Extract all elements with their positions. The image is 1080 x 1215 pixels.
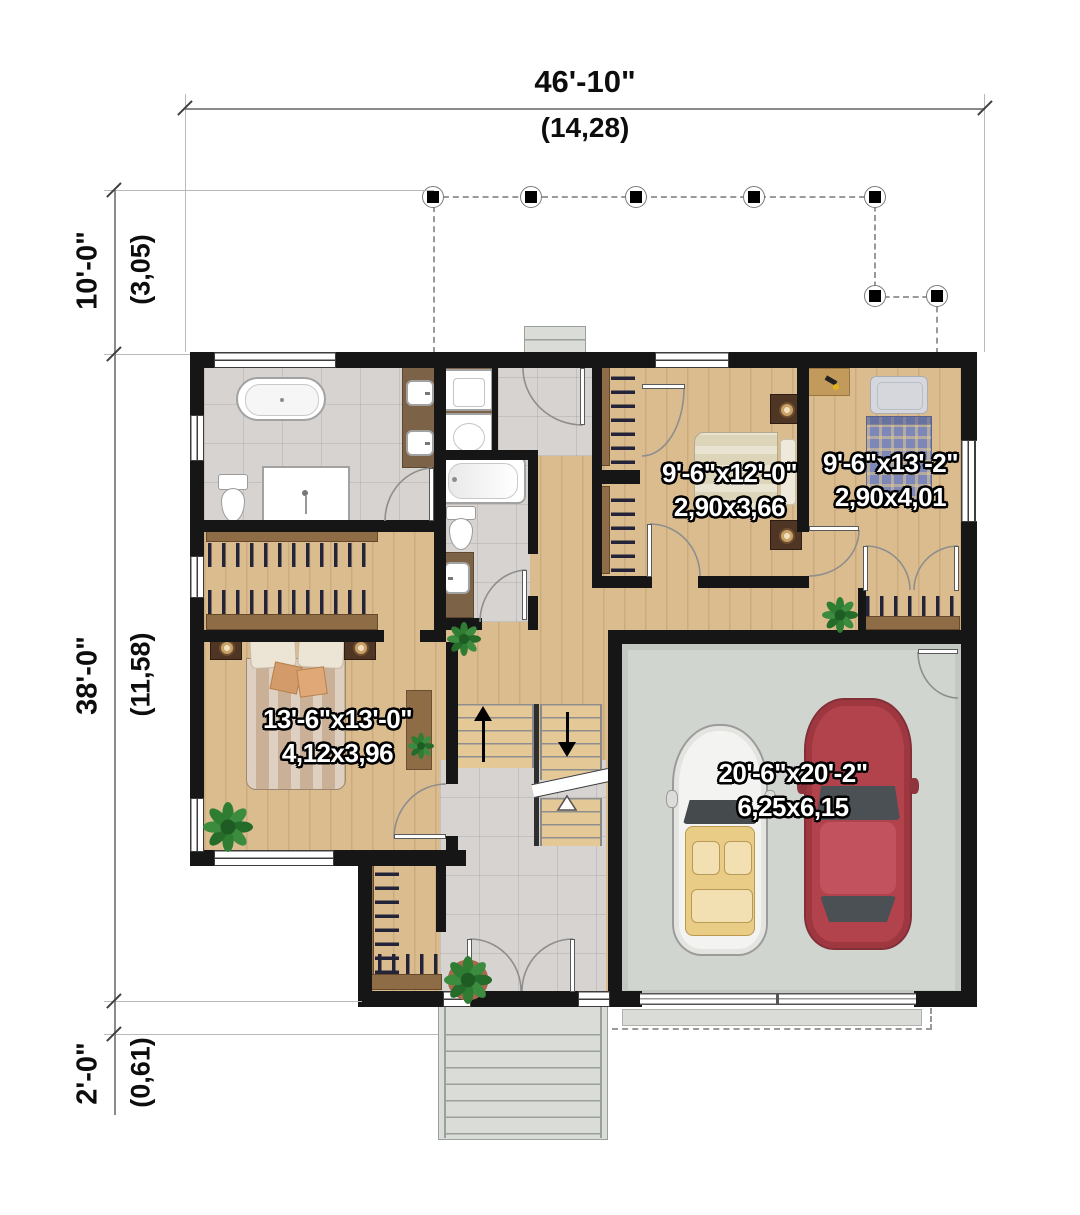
door-leaf [394,834,446,839]
wall [858,588,866,632]
washer [441,369,493,411]
door-swing-arc [866,546,912,592]
door-leaf [429,468,434,521]
window [214,352,336,368]
bedroom3-dim-metric: 2,90x4,01 [788,480,993,514]
dim-house-metric: (11,58) [126,605,157,745]
entry-closet-shelf2 [362,974,442,990]
toilet-bath2 [444,506,478,552]
wall [592,576,652,588]
door-swing-arc [522,939,575,993]
car-red-roof [820,822,896,894]
dim-line-top [185,108,985,110]
wall [358,850,372,1007]
master-bedroom-dim-imperial: 13'-6"x13'-0" [225,702,450,736]
window [190,415,204,461]
front-stoop [524,326,586,354]
ext-line [104,190,434,191]
door-swing-arc [480,570,528,624]
porch-dashed-line [433,196,875,198]
window [214,850,334,866]
door-leaf [809,526,859,531]
toilet-master [216,474,250,524]
garage-door-divider [776,993,779,1005]
dim-porch-imperial: 10'-0" [72,201,105,341]
dim-line-left [114,190,116,1115]
dim-porch-metric: (3,05) [126,200,157,340]
walkin-clothes-top [208,543,376,567]
bedroom3-dim-imperial: 9'-6"x13'-2" [788,446,993,480]
wall [190,630,384,642]
entry-closet-clothes2 [378,954,440,974]
wall [528,450,538,554]
wall [592,352,602,588]
dim-top-imperial: 46'-10" [435,64,735,100]
porch-dashed-line [433,196,435,353]
porch-dashed-line [612,1028,932,1030]
wall [528,596,538,630]
stairs-up-arrow [474,706,492,721]
door-swing-arc [918,652,960,700]
master-sink-1 [406,380,434,406]
porch-dashed-line [874,196,876,297]
garage-apron [622,1009,922,1026]
bathtub [440,456,526,504]
bath2-sink [444,562,470,594]
room-label-garage: 20'-6"x20'-2" 6,25x6,15 [688,756,898,824]
door-leaf [580,368,585,425]
porch-dashed-line [930,1008,932,1030]
porch-step-lines [446,1034,600,1136]
stairs-lower-marker [556,794,578,812]
stairs-divider [534,704,539,846]
bedroom3-closet-clothes [866,596,958,616]
exterior-mask [190,866,358,1016]
door-swing-arc [642,388,686,458]
wall [698,576,809,588]
walkin-clothes-bottom [208,590,376,614]
stairs-down-arrow-stem [566,712,569,742]
walkin-shelf-bottom [206,614,378,630]
wall [608,630,977,644]
plant-icon [822,597,858,633]
garage-dim-metric: 6,25x6,15 [688,790,898,824]
garage-dim-imperial: 20'-6"x20'-2" [688,756,898,790]
wall [434,450,538,460]
car-red-rear-window [820,896,896,922]
bedroom3-closet-shelf [864,616,960,630]
hall-closet1-clothes [611,362,635,464]
ext-line [984,94,985,352]
door-swing-arc [523,368,585,427]
room-label-bedroom3: 9'-6"x13'-2" 2,90x4,01 [788,446,993,514]
porch-post [926,285,948,307]
window [578,991,610,1007]
wall [420,630,446,642]
door-leaf [954,546,959,591]
dim-stoop-metric: (0,61) [126,1003,157,1143]
stairs-down-arrow [558,742,576,757]
porch-post [520,186,542,208]
dim-top-metric: (14,28) [435,112,735,144]
wall [492,366,498,452]
door-leaf [570,939,575,992]
door-swing-arc [809,530,861,578]
wall [436,850,446,932]
door-leaf [642,384,685,389]
dim-house-imperial: 38'-0" [72,606,105,746]
door-leaf [918,649,958,654]
door-swing-arc [650,524,702,578]
master-sink-2 [406,430,434,456]
door-swing-arc [394,784,448,840]
car-red [804,698,912,950]
porch-post [864,186,886,208]
porch-post [625,186,647,208]
dim-stoop-imperial: 2'-0" [72,1004,105,1144]
plant-icon [447,622,481,656]
room-label-master-bedroom: 13'-6"x13'-0" 4,12x3,96 [225,702,450,770]
window [190,798,204,852]
plant-icon [444,956,492,1004]
porch-step-rail-left [444,1000,446,1138]
porch-post [864,285,886,307]
shower [262,466,350,522]
door-leaf [522,570,527,620]
porch-step-rail-right [600,1000,602,1138]
car-white-interior [685,826,755,936]
window [655,352,729,368]
bedroom3-desk [806,368,850,396]
porch-post [743,186,765,208]
plant-icon [203,802,253,852]
door-leaf [863,546,868,591]
floor-plan: 13'-6"x13'-0" 4,12x3,96 9'-6"x12'-0" 2,9… [0,0,1080,1215]
stairs-up-arrow-stem [482,720,485,762]
ext-line [104,354,190,355]
wall [608,630,622,1007]
master-bedroom-dim-metric: 4,12x3,96 [225,736,450,770]
wall [914,991,977,1007]
window [190,556,204,598]
door-leaf [647,524,652,577]
freestanding-tub [236,377,326,421]
ext-line [185,94,186,352]
